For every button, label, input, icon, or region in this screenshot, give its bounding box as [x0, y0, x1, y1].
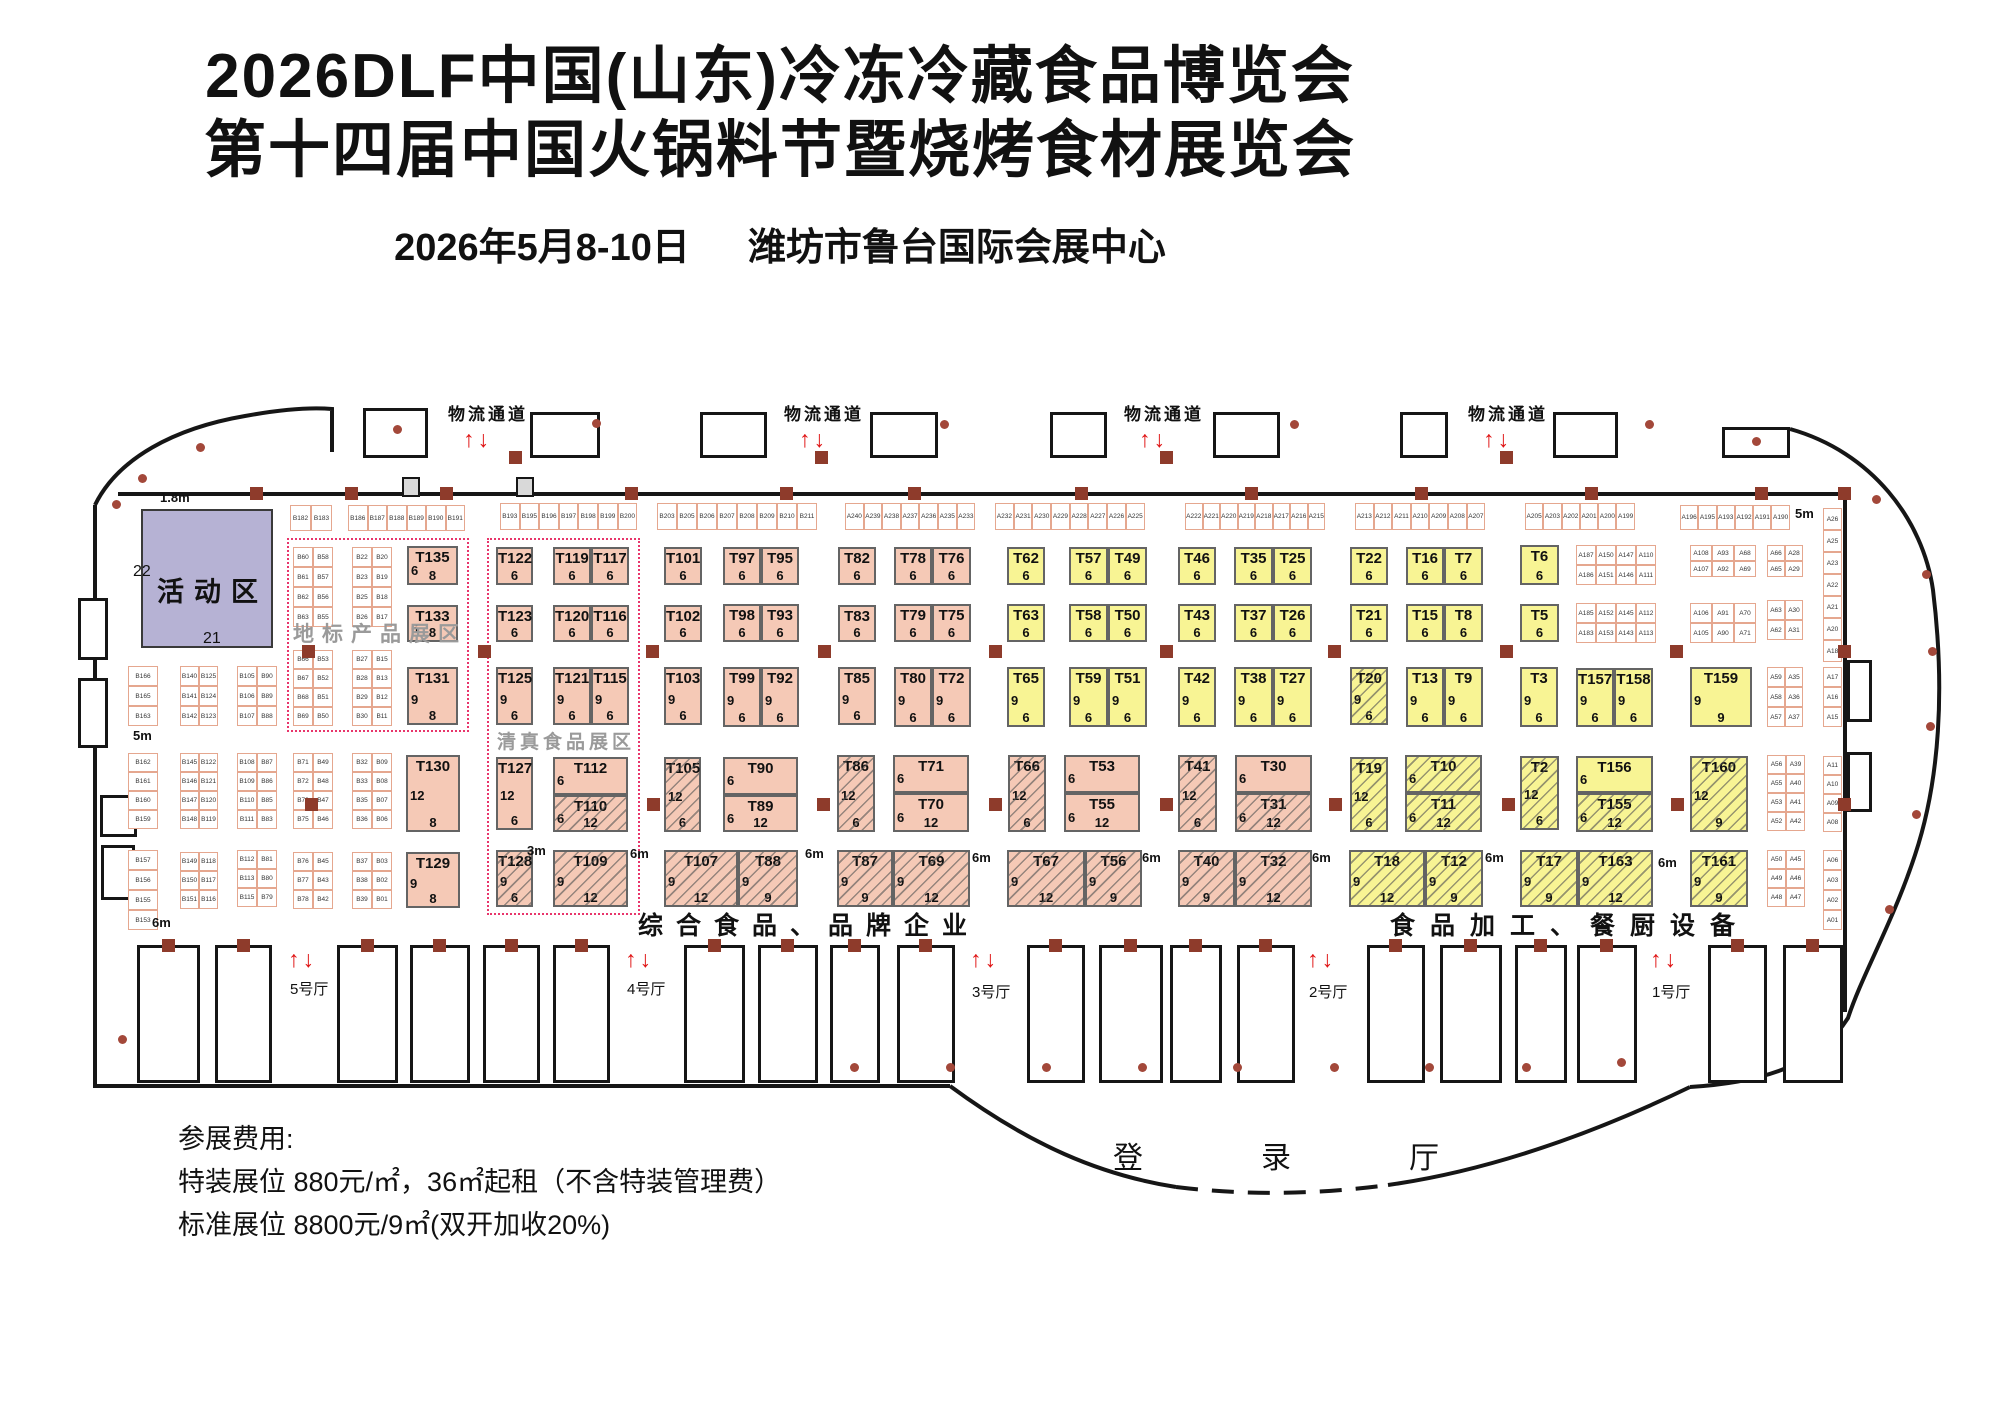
booth-A146: A146	[1616, 565, 1636, 585]
booth-T130: T130128	[406, 755, 460, 832]
booth-T123: T1236	[496, 605, 533, 642]
booth-T75: T756	[932, 604, 971, 642]
hall-label-2: 2号厅	[1309, 981, 1347, 1002]
booth-B89: B89	[257, 686, 277, 706]
standard-booth-block-29: A185A152A145A112A183A153A143A113	[1576, 603, 1656, 643]
booth-T119: T1196	[553, 547, 591, 585]
standard-booth-block-26: B37B03B38B02B39B01	[352, 852, 392, 909]
booth-B42: B42	[313, 890, 333, 909]
booth-B122: B122	[199, 753, 218, 772]
booth-T9: T996	[1444, 667, 1483, 727]
booth-B121: B121	[199, 772, 218, 791]
booth-size-bottom-T116: 6	[593, 625, 627, 640]
booth-size-left-T51: 9	[1112, 693, 1119, 708]
standard-booth-block-32: A63A30A62A31	[1767, 600, 1803, 640]
booth-A222: A222	[1185, 503, 1203, 530]
booth-A110: A110	[1636, 545, 1656, 565]
booth-label-T11: T11	[1407, 796, 1480, 813]
booth-T43: T436	[1178, 604, 1216, 642]
booth-B53: B53	[313, 650, 333, 669]
booth-label-T125: T125	[498, 670, 531, 687]
booth-size-left-T38: 9	[1238, 693, 1245, 708]
booth-size-left-T40: 9	[1182, 874, 1189, 889]
booth-T103: T10396	[664, 667, 702, 725]
pillar-6	[1075, 487, 1088, 500]
booth-size-left-T9: 9	[1448, 693, 1455, 708]
booth-B149: B149	[180, 852, 199, 871]
booth-label-T18: T18	[1351, 853, 1423, 870]
dim-6m-5: 6m	[1312, 850, 1331, 865]
booth-size-bottom-T7: 6	[1446, 568, 1481, 583]
booth-T27: T2796	[1273, 667, 1312, 727]
booth-B142: B142	[180, 706, 199, 726]
booth-T80: T8096	[894, 667, 932, 727]
column-dot-22	[1522, 1063, 1531, 1072]
booth-size-bottom-T55: 12	[1066, 815, 1138, 830]
booth-size-bottom-T5: 6	[1522, 625, 1557, 640]
booth-T21: T216	[1350, 604, 1388, 642]
booth-A208: A208	[1448, 503, 1467, 530]
booth-label-T97: T97	[725, 550, 759, 567]
booth-A228: A228	[1070, 503, 1089, 530]
booth-label-T35: T35	[1236, 550, 1271, 567]
booth-A151: A151	[1596, 565, 1616, 585]
booth-label-T105: T105	[666, 760, 699, 777]
booth-T135: T13568	[407, 546, 458, 585]
booth-T72: T7296	[932, 667, 971, 727]
booth-A22: A22	[1823, 574, 1842, 596]
pillar-room-12	[1189, 939, 1202, 952]
booth-A238: A238	[882, 503, 901, 530]
standard-booth-block-36: A26A25A23A22A21A20A18	[1823, 508, 1842, 662]
booth-T117: T1176	[591, 547, 629, 585]
booth-label-T3: T3	[1522, 670, 1556, 687]
booth-size-left-T42: 9	[1182, 693, 1189, 708]
booth-label-T56: T56	[1087, 853, 1140, 870]
booth-label-T62: T62	[1009, 550, 1043, 567]
booth-A200: A200	[1598, 503, 1616, 530]
dim-6m-6: 6m	[1485, 850, 1504, 865]
booth-size-left-T160: 12	[1694, 788, 1708, 803]
booth-size-left-T105: 12	[668, 789, 682, 804]
logistics-arrows-2: ↑↓	[799, 426, 828, 453]
booth-label-T83: T83	[840, 608, 874, 625]
pillar-4	[780, 487, 793, 500]
booth-B162: B162	[128, 753, 158, 772]
booth-B30: B30	[352, 707, 372, 726]
booth-A199: A199	[1616, 503, 1634, 530]
booth-B140: B140	[180, 666, 199, 686]
booth-A08: A08	[1823, 813, 1842, 832]
standard-booth-block-18: B145B122B146B121B147B120B148B119	[180, 753, 218, 829]
booth-label-T119: T119	[555, 550, 589, 567]
booth-label-T32: T32	[1237, 853, 1310, 870]
booth-T92: T9296	[761, 667, 799, 727]
booth-label-T63: T63	[1009, 607, 1043, 624]
booth-B39: B39	[352, 890, 372, 909]
booth-size-bottom-T38: 6	[1236, 710, 1271, 725]
booth-size-left-T30: 6	[1239, 771, 1246, 786]
booth-size-left-T65: 9	[1011, 693, 1018, 708]
booth-B147: B147	[180, 791, 199, 810]
booth-B150: B150	[180, 871, 199, 890]
booth-label-T115: T115	[593, 670, 627, 687]
booth-B193: B193	[500, 503, 520, 530]
booth-label-T40: T40	[1180, 853, 1233, 870]
booth-B75: B75	[293, 810, 313, 829]
booth-B88: B88	[257, 706, 277, 726]
column-dot-16	[946, 1063, 955, 1072]
booth-T62: T626	[1007, 547, 1045, 585]
booth-A113: A113	[1636, 623, 1656, 643]
booth-A36: A36	[1785, 687, 1803, 707]
booth-T57: T576	[1069, 547, 1108, 585]
booth-B48: B48	[313, 772, 333, 791]
booth-B85: B85	[257, 791, 277, 810]
booth-A49: A49	[1767, 869, 1786, 888]
booth-size-bottom-T78: 6	[896, 568, 930, 583]
booth-size-bottom-T16: 6	[1408, 568, 1442, 583]
booth-B107: B107	[237, 706, 257, 726]
pillar-3	[625, 487, 638, 500]
booth-size-bottom-T160: 9	[1692, 815, 1746, 830]
standard-booth-block-25: B76B45B77B43B78B42	[293, 852, 333, 909]
logistics-label-2: 物流通道	[784, 400, 864, 425]
door-1	[516, 477, 534, 497]
booth-size-bottom-T67: 12	[1009, 890, 1083, 905]
booth-size-bottom-T98: 6	[725, 625, 759, 640]
booth-A47: A47	[1786, 888, 1805, 907]
booth-B207: B207	[717, 503, 737, 530]
pillar-room-5	[575, 939, 588, 952]
booth-B109: B109	[237, 772, 257, 791]
booth-B67: B67	[293, 669, 313, 688]
booth-B159: B159	[128, 810, 158, 829]
booth-label-T122: T122	[498, 550, 531, 567]
booth-B206: B206	[697, 503, 717, 530]
booth-size-bottom-T22: 6	[1352, 568, 1386, 583]
booth-label-T92: T92	[763, 670, 797, 687]
dim-6m-1: 6m	[630, 846, 649, 861]
column-dot-13	[1912, 810, 1921, 819]
activity-area-label: 活动区	[157, 570, 268, 609]
booth-A01: A01	[1823, 910, 1842, 930]
booth-B196: B196	[539, 503, 559, 530]
booth-size-bottom-T50: 6	[1110, 625, 1145, 640]
logistics-label-4: 物流通道	[1468, 400, 1548, 425]
booth-size-bottom-T40: 9	[1180, 890, 1233, 905]
standard-booth-block-31: A66A28A65A29	[1767, 545, 1803, 577]
booth-T155: T155612	[1576, 793, 1653, 832]
hall-room-4	[483, 945, 540, 1083]
booth-T46: T466	[1178, 547, 1216, 585]
booth-B33: B33	[352, 772, 372, 791]
booth-A201: A201	[1580, 503, 1598, 530]
booth-T79: T796	[894, 604, 932, 642]
booth-A239: A239	[864, 503, 883, 530]
booth-B25: B25	[352, 587, 372, 607]
booth-T51: T5196	[1108, 667, 1147, 727]
booth-label-T9: T9	[1446, 670, 1481, 687]
booth-A53: A53	[1767, 793, 1786, 812]
booth-B209: B209	[757, 503, 777, 530]
booth-size-left-T92: 9	[765, 693, 772, 708]
booth-size-bottom-T32: 12	[1237, 890, 1310, 905]
pillar-room-1	[237, 939, 250, 952]
booth-size-left-T31: 6	[1239, 810, 1246, 825]
booth-B27: B27	[352, 650, 372, 669]
dim-6m-left: 6m	[152, 915, 171, 930]
booth-size-bottom-T105: 6	[666, 815, 699, 830]
booth-T7: T76	[1444, 547, 1483, 585]
booth-A20: A20	[1823, 618, 1842, 640]
booth-A37: A37	[1785, 707, 1803, 727]
pillar-26	[305, 798, 318, 811]
booth-T131: T13198	[407, 667, 458, 725]
booth-T116: T1166	[591, 605, 629, 642]
booth-size-bottom-T46: 6	[1180, 568, 1214, 583]
booth-T18: T18912	[1349, 850, 1425, 907]
booth-T38: T3896	[1234, 667, 1273, 727]
standard-booth-block-27: A187A150A147A110A186A151A146A111	[1576, 545, 1656, 585]
booth-label-T59: T59	[1071, 670, 1106, 687]
booth-size-bottom-T80: 6	[896, 710, 930, 725]
dim-1-8m: 1.8m	[160, 490, 190, 505]
booth-A215: A215	[1308, 503, 1326, 530]
booth-A40: A40	[1786, 774, 1805, 793]
booth-label-T26: T26	[1275, 607, 1310, 624]
standard-booth-block-17: B162B161B160B159	[128, 753, 158, 829]
logistics-label-3: 物流通道	[1124, 400, 1204, 425]
booth-size-bottom-T35: 6	[1236, 568, 1271, 583]
booth-label-T7: T7	[1446, 550, 1481, 567]
booth-label-T99: T99	[725, 670, 759, 687]
booth-label-T130: T130	[408, 758, 458, 775]
booth-size-bottom-T13: 6	[1408, 710, 1442, 725]
standard-booth-block-24: B112B81B113B80B115B79	[237, 850, 277, 907]
booth-T88: T8899	[738, 850, 798, 907]
activity-dim-bottom: 21	[203, 630, 221, 648]
booth-size-bottom-T131: 8	[409, 708, 456, 723]
booth-A190: A190	[1771, 505, 1789, 530]
booth-size-left-T71: 6	[897, 771, 904, 786]
booth-label-T85: T85	[840, 670, 874, 687]
booth-size-left-T56: 9	[1089, 874, 1096, 889]
pillar-28	[817, 798, 830, 811]
booth-label-T65: T65	[1009, 670, 1043, 687]
booth-B32: B32	[352, 753, 372, 772]
booth-B105: B105	[237, 666, 257, 686]
booth-T102: T1026	[664, 605, 702, 642]
booth-A210: A210	[1411, 503, 1430, 530]
column-dot-17	[1042, 1063, 1051, 1072]
fees-special-booth: 特装展位 880元/㎡，36㎡起租（不含特装管理费）	[178, 1161, 781, 1204]
booth-B190: B190	[426, 505, 446, 531]
booth-size-left-T18: 9	[1353, 874, 1360, 889]
booth-A193: A193	[1717, 505, 1735, 530]
floorplan-page: 2026DLF中国(山东)冷冻冷藏食品博览会 第十四届中国火锅料节暨烧烤食材展览…	[0, 0, 2000, 1419]
booth-label-T159: T159	[1692, 670, 1750, 687]
column-dot-20	[1330, 1063, 1339, 1072]
pillar-11	[1838, 487, 1851, 500]
booth-A143: A143	[1616, 623, 1636, 643]
expo-title-line2: 第十四届中国火锅料节暨烧烤食材展览会	[0, 114, 1560, 188]
hall-room-1	[215, 945, 272, 1083]
booth-label-T19: T19	[1352, 760, 1386, 777]
booth-B50: B50	[313, 707, 333, 726]
dim-6m-4: 6m	[1142, 850, 1161, 865]
booth-A192: A192	[1735, 505, 1753, 530]
standard-booth-block-9: A196A195A193A192A191A190	[1680, 505, 1790, 530]
pillar-33	[1671, 798, 1684, 811]
booth-size-left-T127: 12	[500, 788, 514, 803]
booth-label-T6: T6	[1522, 548, 1557, 565]
booth-label-T109: T109	[555, 853, 626, 870]
dock-room-3	[870, 412, 938, 458]
booth-T159: T15999	[1690, 667, 1752, 727]
booth-label-T58: T58	[1071, 607, 1106, 624]
booth-label-T13: T13	[1408, 670, 1442, 687]
standard-booth-block-3: B203B205B206B207B208B209B210B211	[657, 503, 817, 530]
booth-B60: B60	[293, 547, 313, 567]
booth-T90: T906	[723, 757, 798, 795]
logistics-arrows-1: ↑↓	[463, 426, 492, 453]
hall-room-6	[684, 945, 745, 1083]
booth-size-left-T80: 9	[898, 693, 905, 708]
dock-room-5	[1213, 412, 1280, 458]
booth-size-left-T69: 9	[897, 874, 904, 889]
booth-T157: T15796	[1576, 668, 1614, 727]
booth-label-T2: T2	[1522, 759, 1557, 776]
booth-A196: A196	[1680, 505, 1698, 530]
hall-room-9	[897, 945, 955, 1083]
booth-T129: T12998	[406, 852, 460, 908]
column-dot-15	[850, 1063, 859, 1072]
booth-A55: A55	[1767, 774, 1786, 793]
booth-A209: A209	[1429, 503, 1448, 530]
dim-3m: 3m	[527, 843, 546, 858]
booth-A10: A10	[1823, 775, 1842, 794]
booth-B211: B211	[797, 503, 817, 530]
booth-B123: B123	[199, 706, 218, 726]
booth-T158: T15896	[1614, 668, 1653, 727]
booth-B141: B141	[180, 686, 199, 706]
hall-room-11	[1099, 945, 1163, 1083]
booth-B146: B146	[180, 772, 199, 791]
booth-label-T86: T86	[839, 758, 873, 775]
booth-label-T43: T43	[1180, 607, 1214, 624]
booth-label-T66: T66	[1010, 758, 1044, 775]
zone-label-dibiao: 地标产品展区	[293, 618, 467, 648]
booth-size-left-T115: 9	[595, 692, 602, 707]
booth-size-bottom-T87: 9	[839, 890, 891, 905]
fees-standard-booth: 标准展位 8800元/9㎡(双开加收20%)	[178, 1204, 781, 1247]
standard-booth-block-39: A06A03A02A01	[1823, 850, 1842, 930]
expo-title-line1: 2026DLF中国(山东)冷冻冷藏食品博览会	[0, 40, 1560, 114]
hall-room-15	[1440, 945, 1502, 1083]
booth-B124: B124	[199, 686, 218, 706]
pillar-29	[989, 798, 1002, 811]
booth-T160: T160129	[1690, 756, 1748, 832]
booth-label-T27: T27	[1275, 670, 1310, 687]
pillar-30	[1160, 798, 1173, 811]
expo-date-venue: 2026年5月8-10日潍坊市鲁台国际会展中心	[0, 216, 1560, 271]
booth-T53: T536	[1064, 755, 1140, 793]
booth-A232: A232	[995, 503, 1014, 530]
booth-T13: T1396	[1406, 667, 1444, 727]
booth-B165: B165	[128, 686, 158, 706]
booth-size-bottom-T70: 12	[895, 815, 967, 830]
hall-arrows-1: ↑↓	[1650, 946, 1679, 973]
booth-B116: B116	[199, 890, 218, 909]
booth-T85: T8596	[838, 667, 876, 725]
column-dot-0	[196, 443, 205, 452]
booth-A240: A240	[845, 503, 864, 530]
booth-B29: B29	[352, 688, 372, 707]
booth-size-bottom-T99: 6	[725, 710, 759, 725]
booth-A203: A203	[1543, 503, 1561, 530]
booth-B166: B166	[128, 666, 158, 686]
booth-label-T157: T157	[1578, 671, 1612, 688]
column-dot-3	[393, 425, 402, 434]
section-label-shipin: 食品加工、餐厨设备	[1390, 906, 1750, 942]
booth-A11: A11	[1823, 756, 1842, 775]
standard-booth-block-7: A213A212A211A210A209A208A207	[1355, 503, 1485, 530]
booth-B38: B38	[352, 871, 372, 890]
booth-label-T76: T76	[934, 550, 969, 567]
booth-B189: B189	[407, 505, 427, 531]
booth-A225: A225	[1126, 503, 1145, 530]
booth-B52: B52	[313, 669, 333, 688]
booth-A23: A23	[1823, 552, 1842, 574]
booth-size-bottom-T97: 6	[725, 568, 759, 583]
booth-T19: T19126	[1350, 757, 1388, 832]
standard-booth-block-21: B32B09B33B08B35B07B36B06	[352, 753, 392, 829]
standard-booth-block-38: A11A10A09A08	[1823, 756, 1842, 832]
booth-size-bottom-T42: 6	[1180, 710, 1214, 725]
booth-size-bottom-T65: 6	[1009, 710, 1043, 725]
standard-booth-block-19: B108B87B109B86B110B85B111B83	[237, 753, 277, 829]
pillar-23	[1500, 645, 1513, 658]
standard-booth-block-1: B186B187B188B189B190B191	[348, 505, 465, 531]
booth-label-T87: T87	[839, 853, 891, 870]
booth-size-left-T11: 6	[1409, 810, 1416, 825]
booth-size-bottom-T3: 6	[1522, 710, 1556, 725]
booth-B71: B71	[293, 753, 313, 772]
booth-A195: A195	[1698, 505, 1716, 530]
booth-A02: A02	[1823, 890, 1842, 910]
hall-room-7	[758, 945, 818, 1083]
booth-label-T163: T163	[1580, 853, 1651, 870]
hall-arrows-3: ↑↓	[970, 946, 999, 973]
booth-B09: B09	[372, 753, 392, 772]
booth-T10: T106	[1405, 755, 1482, 793]
booth-B06: B06	[372, 810, 392, 829]
booth-B199: B199	[598, 503, 618, 530]
standard-booth-block-35: A50A45A49A46A48A47	[1767, 850, 1805, 907]
booth-B77: B77	[293, 871, 313, 890]
booth-size-bottom-T122: 6	[498, 568, 531, 583]
expo-date: 2026年5月8-10日	[394, 227, 690, 269]
booth-T105: T105126	[664, 757, 701, 832]
booth-size-bottom-T120: 6	[555, 625, 589, 640]
booth-A213: A213	[1355, 503, 1374, 530]
booth-T97: T976	[723, 547, 761, 585]
booth-size-left-T86: 12	[841, 788, 855, 803]
booth-A63: A63	[1767, 600, 1785, 620]
side-room-0	[78, 598, 108, 660]
booth-T8: T86	[1444, 604, 1483, 642]
